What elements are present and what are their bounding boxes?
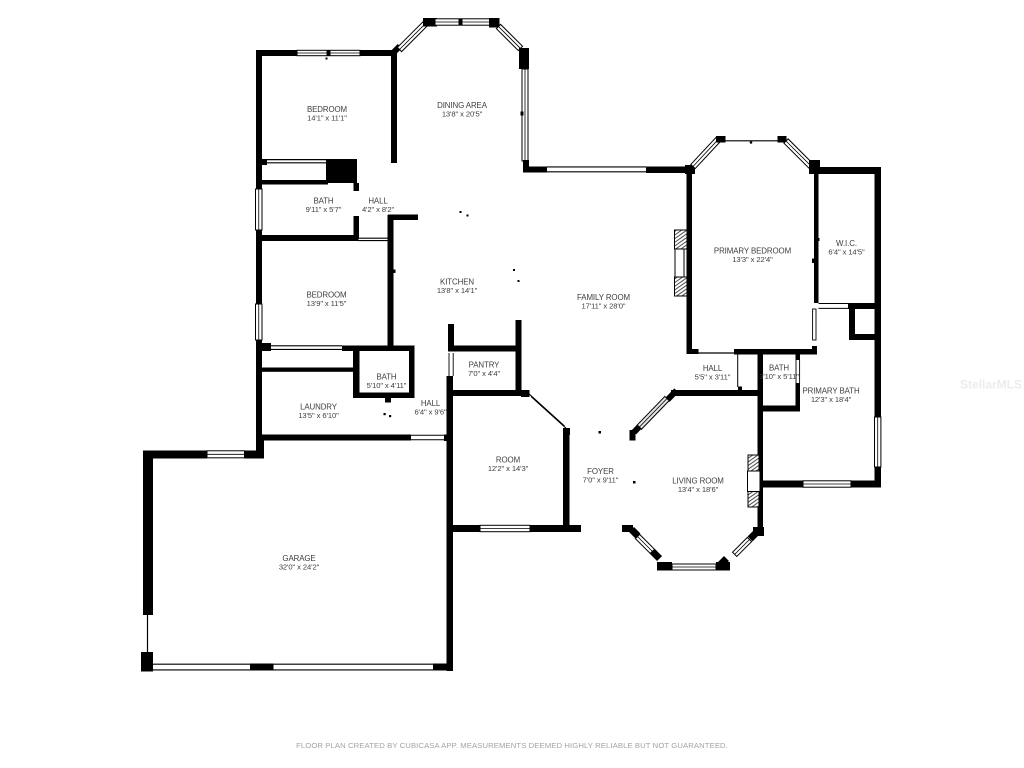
svg-text:13'8" x 14'1": 13'8" x 14'1" (437, 286, 478, 295)
svg-text:7'0" x 4'4": 7'0" x 4'4" (468, 369, 501, 378)
svg-text:FLOOR PLAN CREATED BY CUBICASA: FLOOR PLAN CREATED BY CUBICASA APP. MEAS… (296, 741, 728, 750)
svg-text:13'4" x 18'6": 13'4" x 18'6" (678, 485, 719, 494)
svg-text:13'8" x 20'5": 13'8" x 20'5" (442, 109, 483, 118)
svg-text:17'11" x 28'0": 17'11" x 28'0" (582, 301, 626, 310)
svg-text:5'10" x 4'11": 5'10" x 4'11" (367, 381, 407, 390)
svg-text:7'0" x 9'11": 7'0" x 9'11" (583, 475, 619, 484)
svg-text:13'5" x 6'10": 13'5" x 6'10" (298, 411, 339, 420)
svg-text:6'4" x 9'6": 6'4" x 9'6" (414, 407, 447, 416)
svg-text:32'0" x 24'2": 32'0" x 24'2" (279, 562, 320, 571)
svg-text:4'2" x 8'2": 4'2" x 8'2" (362, 205, 395, 214)
svg-text:5'5" x 3'11": 5'5" x 3'11" (695, 372, 731, 381)
svg-text:14'1" x 11'1": 14'1" x 11'1" (307, 113, 347, 122)
svg-text:6'4" x 14'5": 6'4" x 14'5" (828, 247, 865, 256)
svg-text:StellarMLS: StellarMLS (960, 378, 1022, 392)
svg-text:13'3" x 22'4": 13'3" x 22'4" (732, 255, 773, 264)
svg-text:12'2" x 14'3": 12'2" x 14'3" (488, 464, 529, 473)
svg-text:13'9" x 11'5": 13'9" x 11'5" (307, 299, 347, 308)
svg-text:12'3" x 18'4": 12'3" x 18'4" (811, 395, 852, 404)
svg-text:3'10" x 5'11": 3'10" x 5'11" (759, 372, 799, 381)
svg-text:9'11" x 5'7": 9'11" x 5'7" (306, 205, 342, 214)
